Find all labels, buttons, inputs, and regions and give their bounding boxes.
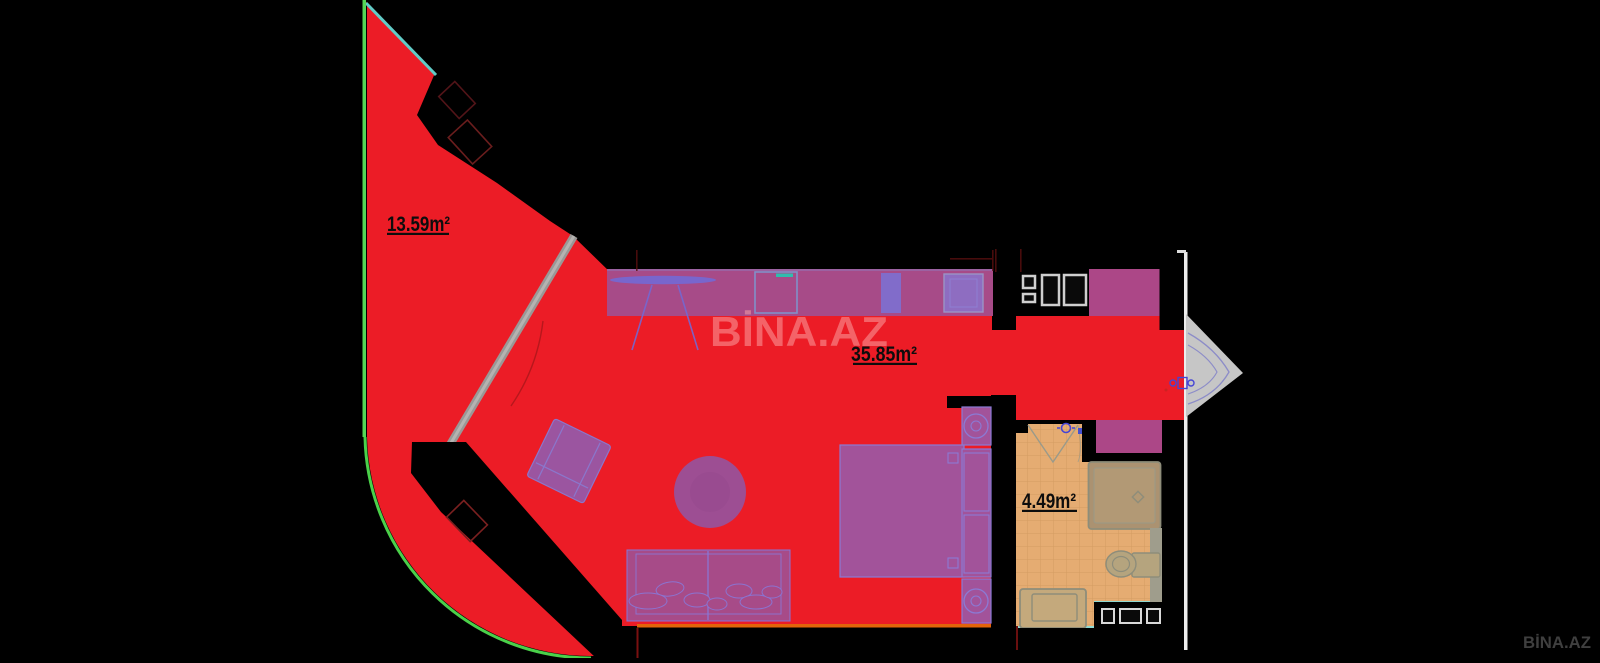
svg-text:13.59m²: 13.59m²: [387, 213, 450, 236]
svg-text:BİNA.AZ: BİNA.AZ: [1523, 634, 1591, 652]
svg-text:BİNA.AZ: BİNA.AZ: [710, 308, 888, 355]
svg-text:4.49m²: 4.49m²: [1022, 490, 1076, 513]
